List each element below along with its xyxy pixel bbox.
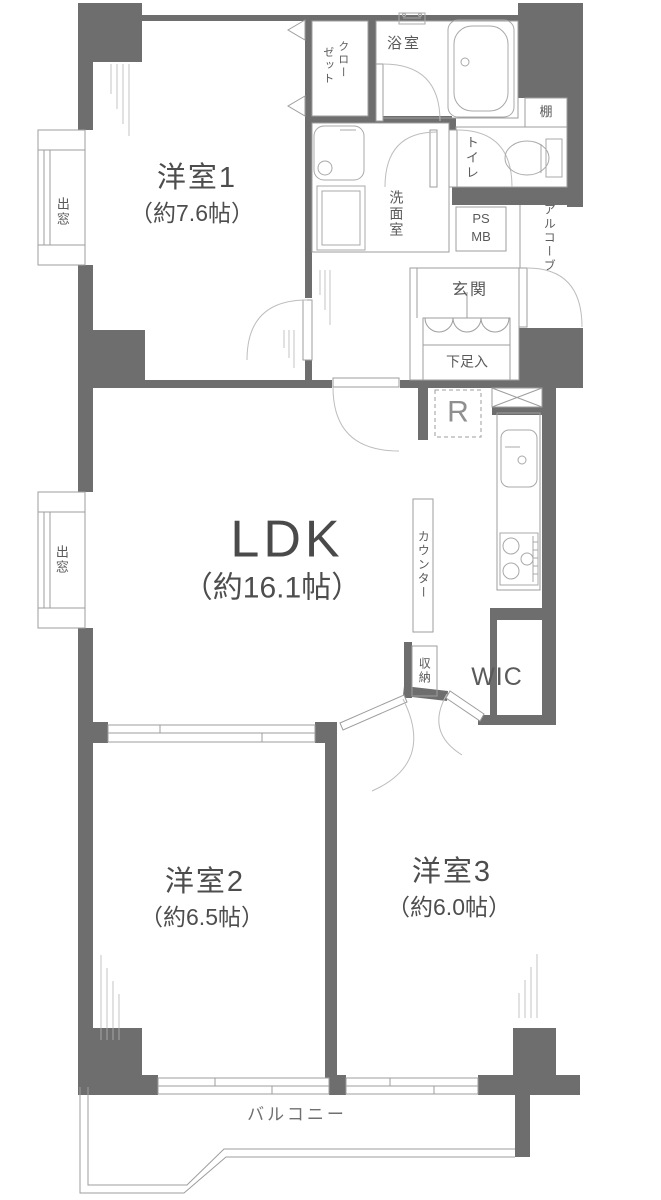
ldk-door-leaf (333, 378, 399, 387)
bath-door-arc (383, 64, 440, 121)
storage-label: 収納 (418, 657, 431, 685)
corner-door-right-leaf (446, 691, 484, 721)
bath-door-leaf (376, 64, 383, 121)
bath-label: 浴室 (387, 36, 421, 52)
window-western3 (346, 1078, 478, 1094)
balcony-outline (80, 1087, 515, 1193)
shoe-cabinet-label: 下足入 (446, 355, 488, 370)
toilet-label: トイレ (464, 136, 478, 181)
washbasin-fixture (314, 126, 364, 180)
ps-label: PS (472, 212, 489, 226)
closet-label-col1: クロー (336, 41, 348, 80)
front-door-arc (527, 268, 582, 327)
toilet-door-leaf (449, 130, 457, 187)
toilet-fixture (505, 139, 562, 177)
kitchen-sink-fixture (501, 430, 537, 487)
corner-door-left-leaf (340, 695, 407, 730)
bay-window-lower-label: 出窓 (54, 545, 68, 575)
western1-door-arc (247, 300, 307, 360)
window-western2 (158, 1078, 329, 1094)
stove-fixture (500, 533, 538, 585)
floor-plan: 洋室1 （約7.6帖） LDK （約16.1帖） 洋室2 （約6.5帖） 洋室3… (0, 0, 661, 1200)
shelf-label: 棚 (539, 105, 552, 119)
room-size-ldk: （約16.1帖） (183, 572, 361, 604)
balcony-label: バルコニー (247, 1106, 347, 1124)
western1-door-leaf (303, 300, 312, 360)
closet-bifold-door (288, 20, 305, 116)
bay-window-upper-label: 出窓 (55, 197, 69, 227)
room-label-western1: 洋室1 (157, 163, 237, 193)
wic-label: WIC (471, 664, 523, 690)
room-size-western2: （約6.5帖） (140, 905, 264, 929)
doors (247, 20, 582, 791)
room-label-western3: 洋室3 (412, 857, 492, 887)
room-label-western2: 洋室2 (165, 867, 245, 897)
room-size-western3: （約6.0帖） (387, 895, 511, 919)
washing-machine-space (317, 186, 365, 250)
closet-label-col2: ゼット (321, 47, 333, 86)
entrance-label: 玄関 (452, 283, 488, 300)
washroom-door-leaf (430, 130, 437, 187)
room-label-ldk: LDK (230, 513, 343, 568)
bathtub-fixture (448, 20, 514, 117)
shoe-cabinet-doors (425, 318, 509, 332)
partition-window-ldk-western2 (108, 725, 315, 742)
washroom-door-arc (385, 132, 437, 187)
refrigerator-label: R (447, 396, 469, 428)
washroom-label: 洗面室 (389, 190, 404, 238)
counter-label: カウンター (417, 530, 430, 600)
mb-label: MB (471, 230, 491, 244)
ldk-door-arc (333, 387, 399, 451)
front-door-leaf (519, 268, 527, 327)
alcove-label: アルコーブ (543, 203, 556, 273)
room-size-western1: （約7.6帖） (130, 201, 254, 225)
